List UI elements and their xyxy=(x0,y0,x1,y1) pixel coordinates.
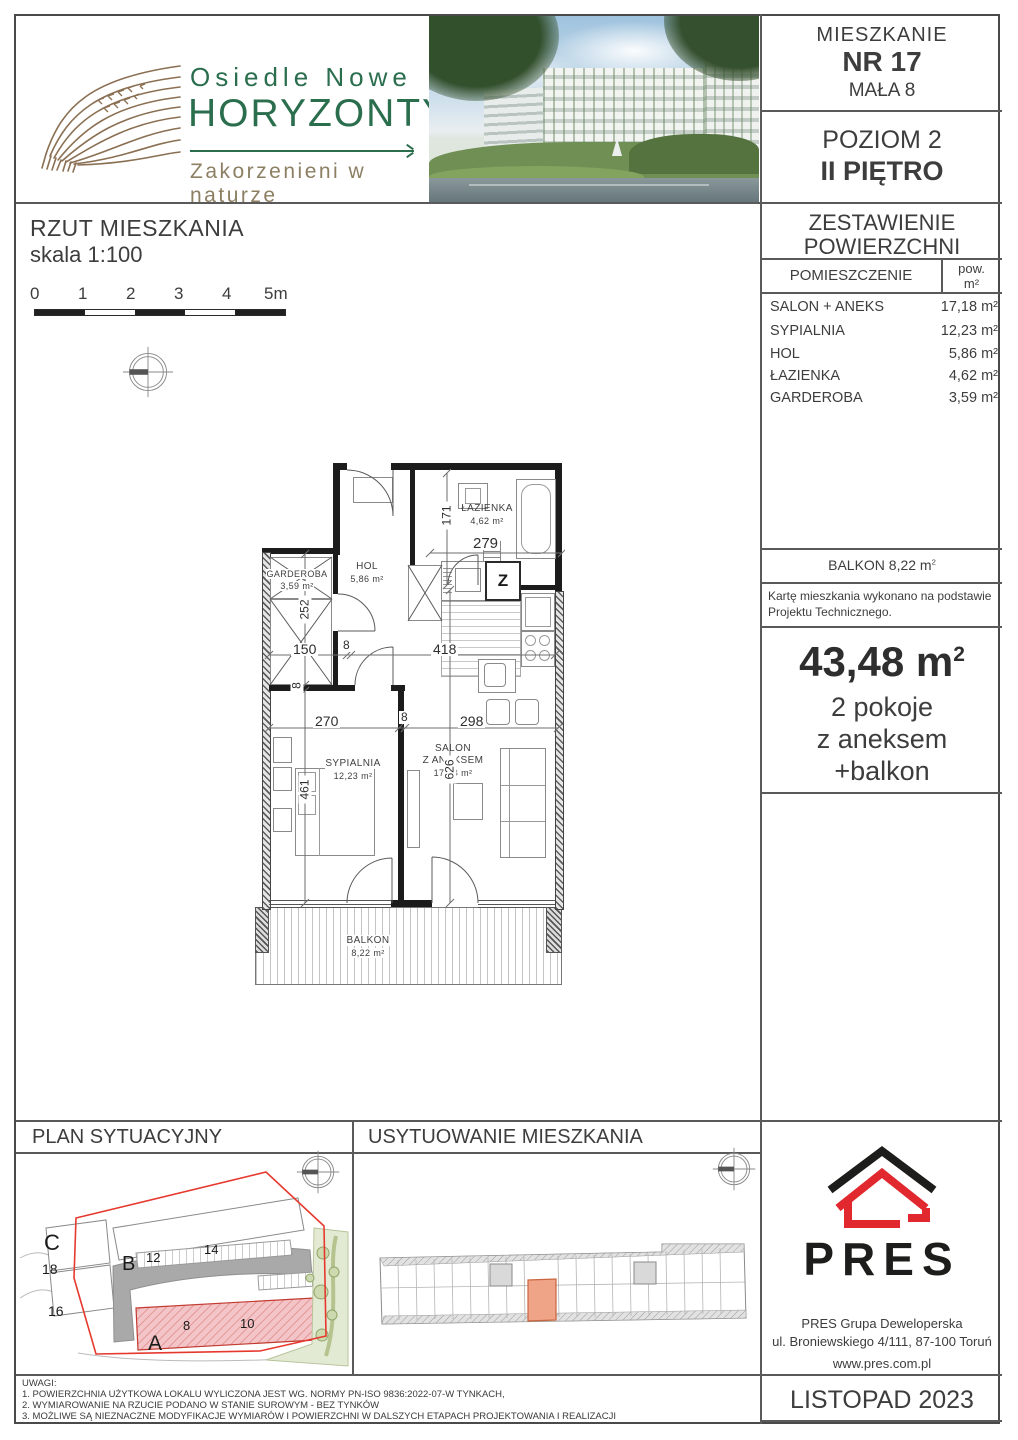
divider xyxy=(16,1120,1002,1122)
site-label-8: 8 xyxy=(183,1318,190,1333)
photo-water xyxy=(429,178,759,202)
room-area: 4,62 m² xyxy=(949,368,998,384)
scale-tick: 3 xyxy=(174,284,183,304)
divider xyxy=(762,1420,1002,1422)
level-line2: II PIĘTRO xyxy=(762,156,1002,187)
total-area-sup: 2 xyxy=(953,643,965,666)
logo-underline-arrow xyxy=(406,152,414,158)
site-plan-header: PLAN SYTUACYJNY xyxy=(32,1126,222,1149)
logo-tagline: Zakorzenieni w naturze xyxy=(190,160,428,208)
note-item: 2. WYMIAROWANIE NA RZUCIE PODANO W STANI… xyxy=(22,1400,752,1411)
area-row: SYPIALNIA 12,23 m² xyxy=(770,323,998,339)
divider xyxy=(16,1374,1002,1376)
scale-bar-segments xyxy=(34,309,286,316)
divider xyxy=(762,792,1002,794)
summary-line3: +balkon xyxy=(762,756,1002,787)
site-label-12: 12 xyxy=(146,1250,160,1265)
floor-plan: BALKON 8,22 m² xyxy=(253,453,565,1018)
scale-tick: 4 xyxy=(222,284,231,304)
developer-logo: Osiedle Nowe HORYZONTY Zakorzenieni w na… xyxy=(16,16,428,202)
building-floor-strip xyxy=(372,1224,756,1342)
site-label-14: 14 xyxy=(204,1242,218,1257)
logo-line2: HORYZONTY xyxy=(188,92,450,136)
room-name: ŁAZIENKA xyxy=(770,368,840,384)
room-area: 17,18 m² xyxy=(941,299,998,315)
photo-water-streak xyxy=(469,184,709,186)
note-item: 3. MOŻLIWE SĄ NIEZNACZNE MODYFIKACJE WYM… xyxy=(22,1411,752,1422)
area-table-title-line2: POWIERZCHNI xyxy=(762,234,1002,260)
dim-150: 150 xyxy=(291,643,318,656)
divider xyxy=(762,258,1002,260)
notes-header: UWAGI: xyxy=(22,1378,752,1389)
dim-298: 298 xyxy=(458,715,485,728)
site-label-10: 10 xyxy=(240,1316,254,1331)
dim-279: 279 xyxy=(471,537,500,550)
scale-tick: 0 xyxy=(30,284,39,304)
site-label-B: B xyxy=(122,1253,135,1275)
divider xyxy=(762,110,1002,112)
balcony-sup: 2 xyxy=(932,557,936,566)
scale-tick: 2 xyxy=(126,284,135,304)
dim-8b: 8 xyxy=(399,711,410,724)
area-table-title-line1: ZESTAWIENIE xyxy=(762,210,1002,236)
pres-address: ul. Broniewskiego 4/111, 87-100 Toruń xyxy=(762,1334,1002,1349)
dim-8a: 8 xyxy=(341,639,352,652)
logo-line1: Osiedle Nowe xyxy=(190,62,412,93)
dim-171: 171 xyxy=(441,502,454,530)
apartment-card-page: Osiedle Nowe HORYZONTY Zakorzenieni w na… xyxy=(0,0,1018,1440)
scale-tick: 5m xyxy=(264,284,288,304)
apartment-street: MAŁA 8 xyxy=(762,80,1002,102)
summary-line2: z aneksem xyxy=(762,724,1002,755)
plan-title: RZUT MIESZKANIA xyxy=(30,215,244,242)
room-name: SALON + ANEKS xyxy=(770,299,884,315)
area-row: SALON + ANEKS 17,18 m² xyxy=(770,299,998,315)
scale-bar: 0 1 2 3 4 5m xyxy=(30,284,300,324)
photo-sailboat xyxy=(612,138,622,156)
north-compass xyxy=(122,346,174,403)
dim-461: 461 xyxy=(299,776,312,804)
area-table-col-area2: m² xyxy=(941,276,1002,291)
divider xyxy=(16,202,1002,204)
estate-photo xyxy=(429,16,759,202)
summary-line1: 2 pokoje xyxy=(762,692,1002,723)
balcony-area-row: BALKON 8,22 m2 xyxy=(762,557,1002,573)
notes-block: UWAGI: 1. POWIERZCHNIA UŻYTKOWA LOKALU W… xyxy=(22,1378,752,1422)
logo-underline xyxy=(190,150,414,152)
room-name: SYPIALNIA xyxy=(770,323,845,339)
plan-linework xyxy=(253,453,565,1018)
plan-scale: skala 1:100 xyxy=(30,242,143,268)
logo-horizon-graphic xyxy=(40,56,190,174)
room-name: GARDEROBA xyxy=(770,390,863,406)
dim-270: 270 xyxy=(313,715,340,728)
site-label-C: C xyxy=(44,1230,60,1255)
dim-418: 418 xyxy=(431,643,458,656)
divider xyxy=(762,548,1002,550)
balcony-text: BALKON 8,22 m xyxy=(828,557,932,573)
divider xyxy=(16,1152,760,1154)
dim-626: 626 xyxy=(444,756,457,784)
north-compass xyxy=(712,1147,756,1196)
pres-wordmark: PRES xyxy=(762,1232,1002,1286)
area-table-col-area1: pow. xyxy=(941,261,1002,276)
pres-website: www.pres.com.pl xyxy=(762,1356,1002,1371)
site-label-16: 16 xyxy=(48,1303,64,1319)
room-area: 12,23 m² xyxy=(941,323,998,339)
area-row: HOL 5,86 m² xyxy=(770,346,998,362)
divider xyxy=(762,582,1002,584)
location-header: USYTUOWANIE MIESZKANIA xyxy=(368,1126,643,1149)
level-line1: POZIOM 2 xyxy=(762,126,1002,155)
divider xyxy=(352,1120,354,1374)
issue-date: LISTOPAD 2023 xyxy=(762,1386,1002,1415)
pres-company: PRES Grupa Deweloperska xyxy=(762,1316,1002,1331)
apartment-label: MIESZKANIE xyxy=(762,24,1002,47)
apartment-number: NR 17 xyxy=(762,46,1002,78)
site-label-18: 18 xyxy=(42,1261,58,1277)
room-label-hol: HOL5,86 m² xyxy=(337,561,397,586)
divider xyxy=(762,292,1002,294)
note-item: 1. POWIERZCHNIA UŻYTKOWA LOKALU WYLICZON… xyxy=(22,1389,752,1400)
total-area: 43,48 m2 xyxy=(762,638,1002,686)
area-row: ŁAZIENKA 4,62 m² xyxy=(770,368,998,384)
pres-logo xyxy=(822,1140,942,1233)
room-area: 3,59 m² xyxy=(949,390,998,406)
scale-tick: 1 xyxy=(78,284,87,304)
photo-bushes xyxy=(629,134,759,174)
technical-note: Kartę mieszkania wykonano na podstawie P… xyxy=(768,588,998,620)
dim-252: 252 xyxy=(299,596,312,624)
room-label-lazienka: ŁAZIENKA4,62 m² xyxy=(442,503,532,528)
room-label-sypialnia: SYPIALNIA12,23 m² xyxy=(313,758,393,783)
dim-8c: 8 xyxy=(291,676,304,696)
site-plan-drawing: C 18 16 B 12 14 8 10 A xyxy=(18,1158,350,1370)
total-area-value: 43,48 m xyxy=(799,638,953,685)
room-label-garderoba: GARDEROBA3,59 m² xyxy=(262,568,332,592)
area-table-col-room: POMIESZCZENIE xyxy=(762,267,940,284)
site-label-A: A xyxy=(148,1332,162,1355)
area-row: GARDEROBA 3,59 m² xyxy=(770,390,998,406)
room-name: HOL xyxy=(770,346,800,362)
room-area: 5,86 m² xyxy=(949,346,998,362)
divider xyxy=(762,626,1002,628)
